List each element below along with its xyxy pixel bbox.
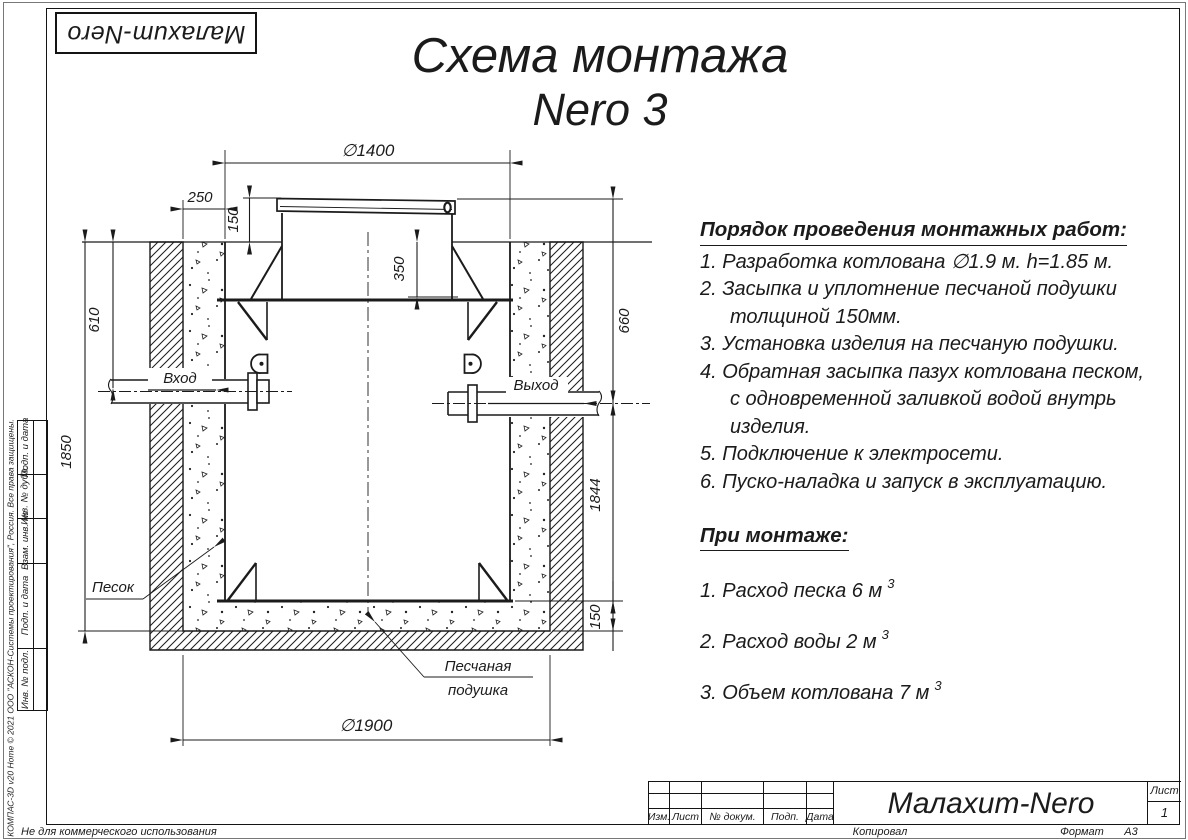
installation-instructions: Порядок проведения монтажных работ: 1. Р…	[700, 216, 1150, 496]
outlet-label: Выход	[513, 377, 558, 394]
dim-body-height: 1844	[587, 478, 604, 511]
sand-pad-label-2: подушка	[448, 682, 508, 699]
instruction-item: 6. Пуско-наладка и запуск в эксплуатацию…	[700, 469, 1150, 497]
montage-item: 2. Расход воды 2 м3	[700, 621, 1150, 656]
rev-col-list: Лист	[670, 809, 702, 825]
rev-col-podp: Подп.	[764, 809, 807, 825]
format-value: А3	[1116, 826, 1146, 838]
superscript: 3	[887, 576, 894, 591]
rev-col-data: Дата	[807, 809, 834, 825]
copied-label: Копировал	[840, 826, 920, 838]
instruction-item: 4. Обратная засыпка пазух котлована песк…	[700, 359, 1150, 442]
inlet-label: Вход	[163, 370, 196, 387]
rev-col-dokum: № докум.	[702, 809, 764, 825]
instruction-item: 3. Установка изделия на песчаную подушки…	[700, 331, 1150, 359]
instruction-item: 5. Подключение к электросети.	[700, 441, 1150, 469]
stamp-label: Взам. инв. №	[20, 511, 31, 570]
instructions-heading: Порядок проведения монтажных работ:	[700, 216, 1127, 246]
superscript: 3	[934, 678, 941, 693]
stamp-label: Подп. и дата	[20, 576, 31, 635]
dim-outlet-depth: 660	[616, 308, 633, 334]
format-label: Формат	[1052, 826, 1112, 838]
dim-wall-gap: 250	[186, 189, 213, 206]
montage-item: 3. Объем котлована 7 м3	[700, 672, 1150, 707]
drawing-sheet: { "sheet": { "logo_text": "Малахит-Nero"…	[0, 0, 1188, 840]
stamp-cell: Подп. и дата	[17, 563, 48, 649]
product-title-cell: Малахит-Nero	[833, 781, 1148, 825]
dim-cover-height: 150	[225, 207, 242, 233]
sheet-label: Лист	[1148, 782, 1181, 802]
sheet-number: 1	[1148, 802, 1181, 824]
non-commercial-note: Не для коммерческого использования	[21, 826, 241, 838]
dim-neck-depth: 350	[391, 256, 408, 282]
superscript: 3	[882, 627, 889, 642]
inlet-pipe: Вход	[98, 368, 292, 410]
revision-table: Изм. Лист № докум. Подп. Дата	[648, 781, 834, 825]
stamp-cell: Взам. инв. №	[17, 518, 48, 564]
dim-top-diameter: ∅1400	[342, 141, 395, 160]
instruction-item: 1. Разработка котлована ∅1.9 м. h=1.85 м…	[700, 249, 1150, 277]
stamp-label: Инв. № подл.	[20, 650, 31, 709]
product-title: Малахит-Nero	[888, 787, 1095, 821]
dim-pit-depth: 1850	[58, 435, 75, 469]
cad-copyright: КОМПАС-3D v20 Home © 2021 ООО "АСКОН-Сис…	[3, 420, 18, 836]
montage-notes: При монтаже: 1. Расход песка 6 м3 2. Рас…	[700, 522, 1150, 707]
sand-label: Песок	[92, 579, 135, 596]
cover-vent	[444, 203, 450, 213]
instruction-item: 2. Засыпка и уплотнение песчаной подушки…	[700, 276, 1150, 331]
lifting-lugs	[251, 354, 481, 373]
sand-pad-label-1: Песчаная	[445, 658, 512, 675]
dim-inlet-depth: 610	[86, 307, 103, 333]
montage-item: 1. Расход песка 6 м3	[700, 570, 1150, 605]
stamp-cell: Инв. № подл.	[17, 648, 48, 711]
sheet-number-cell: Лист 1	[1147, 781, 1181, 825]
outlet-pipe: Выход	[432, 377, 650, 422]
tank-cover	[277, 199, 455, 215]
dim-pad-thickness: 150	[587, 604, 604, 630]
dim-pit-diameter: ∅1900	[340, 716, 393, 735]
montage-heading: При монтаже:	[700, 522, 849, 551]
rev-col-izm: Изм.	[649, 809, 670, 825]
